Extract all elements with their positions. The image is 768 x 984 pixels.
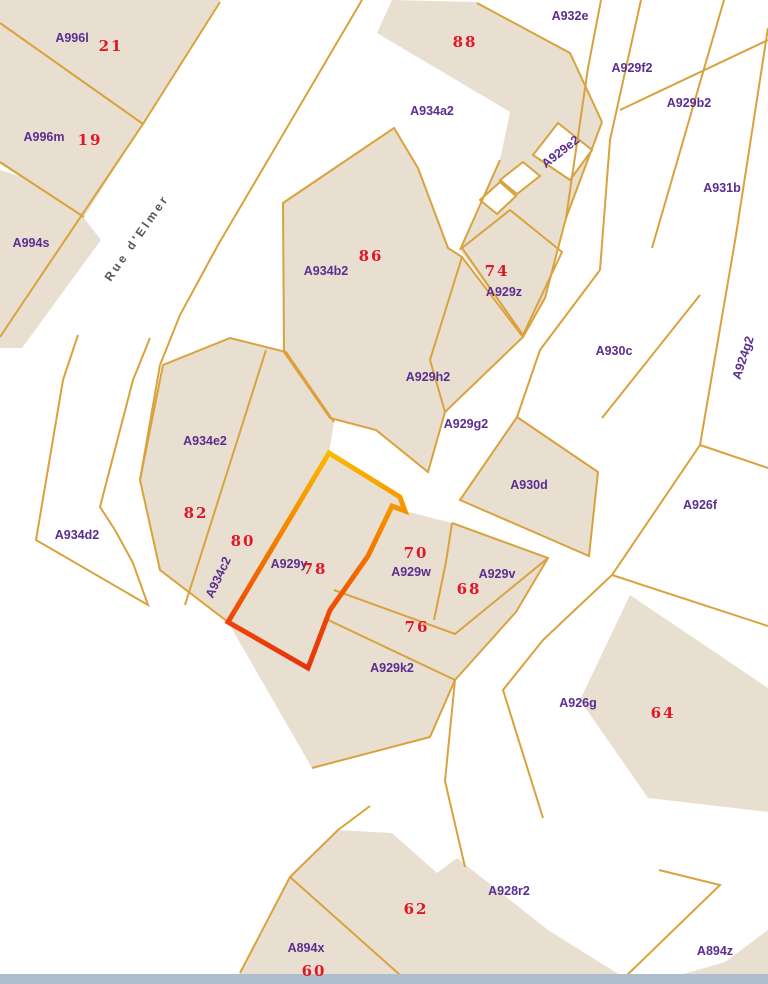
parcel-label-A930d: A930d <box>510 478 548 492</box>
parcel-label-A996l: A996l <box>55 31 88 45</box>
cadastral-map-viewport[interactable]: A996lA996mA994sA934a2A932eA929f2A929b2A9… <box>0 0 768 984</box>
outline-a934d2 <box>36 335 150 605</box>
parcel-label-A929z: A929z <box>486 285 522 299</box>
parcel-label-A994s: A994s <box>13 236 50 250</box>
parcel-label-A996m: A996m <box>24 130 65 144</box>
parcel-label-A929b2: A929b2 <box>667 96 712 110</box>
house-number-62: 62 <box>404 900 429 918</box>
parcel-label-A931b: A931b <box>703 181 741 195</box>
house-number-80: 80 <box>231 532 256 550</box>
parcel-label-A929g2: A929g2 <box>444 417 489 431</box>
parcel-label-A928r2: A928r2 <box>488 884 530 898</box>
strip-a929f2-east <box>600 0 641 270</box>
parcel-label-A894z: A894z <box>697 944 733 958</box>
parcel-label-A930c: A930c <box>596 344 633 358</box>
house-number-78: 78 <box>303 560 328 578</box>
street-name-label: Rue d'Elmer <box>102 192 172 284</box>
house-number-86: 86 <box>359 247 384 265</box>
cadastral-map[interactable]: A996lA996mA994sA934a2A932eA929f2A929b2A9… <box>0 0 768 984</box>
house-number-21: 21 <box>99 37 124 55</box>
parcel-label-A934a2: A934a2 <box>410 104 454 118</box>
parcel-label-A924g2: A924g2 <box>730 334 757 381</box>
house-number-64: 64 <box>651 704 676 722</box>
parcel-label-A934e2: A934e2 <box>183 434 227 448</box>
boundary-a894z <box>622 870 720 980</box>
parcel-label-A926f: A926f <box>683 498 718 512</box>
parcel-label-A929w: A929w <box>391 565 431 579</box>
divider-a926f-a924g2 <box>700 445 768 468</box>
parcel-label-A894x: A894x <box>288 941 325 955</box>
house-number-70: 70 <box>404 544 429 562</box>
parcel-label-A934b2: A934b2 <box>304 264 349 278</box>
parcel-label-A929v: A929v <box>479 567 516 581</box>
parcel-label-A926g: A926g <box>559 696 597 710</box>
parcel-label-A934d2: A934d2 <box>55 528 100 542</box>
parcel-label-A932e: A932e <box>552 9 589 23</box>
parcel-label-A929h2: A929h2 <box>406 370 451 384</box>
house-number-82: 82 <box>184 504 209 522</box>
house-number-74: 74 <box>485 262 510 280</box>
house-number-19: 19 <box>78 131 103 149</box>
house-number-68: 68 <box>457 580 482 598</box>
house-number-76: 76 <box>405 618 430 636</box>
house-number-88: 88 <box>453 33 478 51</box>
parcel-label-A929f2: A929f2 <box>612 61 653 75</box>
parcel-label-A929k2: A929k2 <box>370 661 414 675</box>
house-number-60: 60 <box>302 962 327 980</box>
map-sheet-edge-bar <box>0 974 768 984</box>
strip-a929b2-east <box>652 0 724 248</box>
